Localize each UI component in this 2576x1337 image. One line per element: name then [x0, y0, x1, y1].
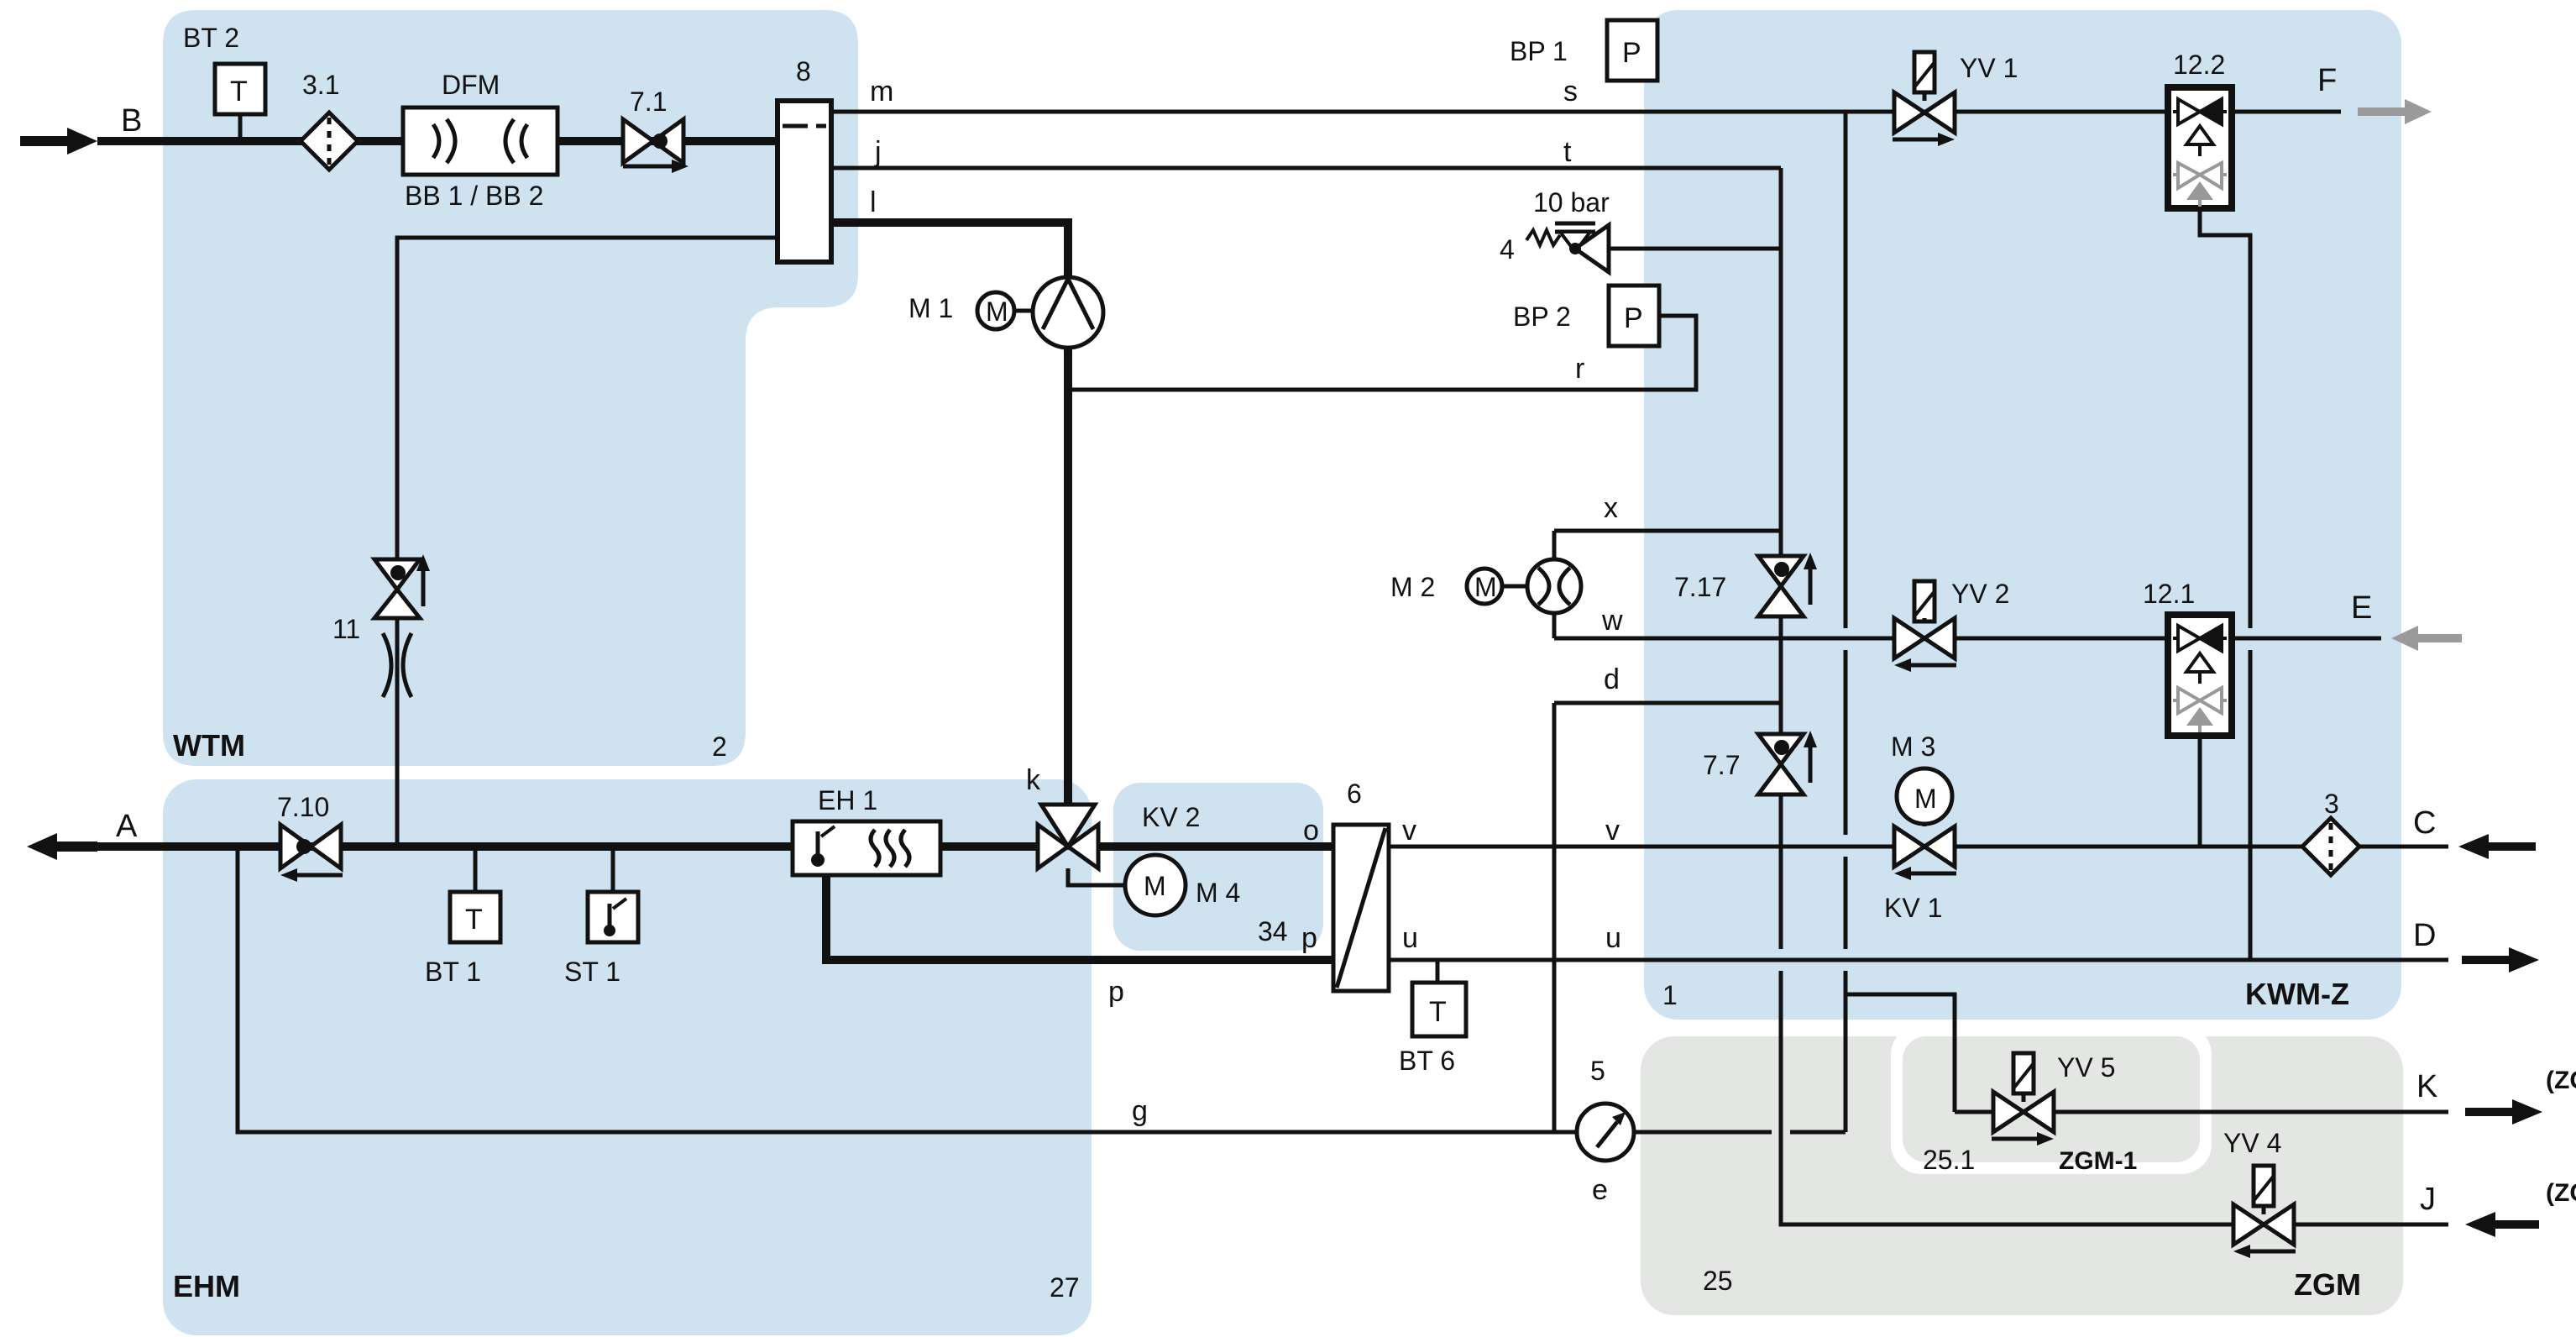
- dfm-meter-icon: [403, 107, 558, 175]
- label-m1: M 1: [908, 293, 953, 323]
- label-d-out: D: [2413, 918, 2436, 953]
- label-3: 3: [2324, 789, 2339, 819]
- label-p-line: p: [1108, 976, 1124, 1008]
- arrow-j-in: [2465, 1212, 2539, 1237]
- label-x: x: [1604, 492, 1618, 524]
- label-w: w: [1601, 605, 1623, 637]
- label-6: 6: [1347, 779, 1362, 809]
- label-yv4: YV 4: [2223, 1128, 2281, 1158]
- label-7_7: 7.7: [1703, 750, 1740, 780]
- label-10bar: 10 bar: [1533, 187, 1610, 218]
- pump-m1-icon: [1033, 277, 1103, 348]
- label-v-port: v: [1402, 815, 1416, 847]
- label-ehm: EHM: [173, 1269, 240, 1303]
- label-27: 27: [1050, 1272, 1080, 1303]
- vent-12_1-icon: [2168, 615, 2232, 736]
- label-12_1: 12.1: [2143, 579, 2195, 609]
- label-st1: ST 1: [564, 957, 620, 987]
- label-bp1: BP 1: [1510, 36, 1568, 66]
- label-1: 1: [1662, 980, 1678, 1010]
- label-m2-m: M: [1474, 572, 1497, 602]
- label-7_1: 7.1: [630, 87, 667, 117]
- label-yv2: YV 2: [1951, 579, 2009, 609]
- region-ehm: [163, 779, 1092, 1335]
- vent-12_2-icon: [2168, 87, 2232, 208]
- label-e-port: e: [1592, 1174, 1608, 1206]
- label-o: o: [1303, 815, 1319, 847]
- label-25_1: 25.1: [1923, 1145, 1975, 1175]
- arrow-k-out: [2465, 1099, 2542, 1125]
- label-b: B: [121, 103, 142, 139]
- label-j-out: J: [2420, 1182, 2436, 1217]
- arrow-c-in: [2458, 834, 2536, 859]
- label-zg-k: (ZG): [2546, 1067, 2576, 1094]
- label-s: s: [1563, 76, 1578, 107]
- label-bt1: BT 1: [425, 957, 481, 987]
- label-p-port: p: [1301, 922, 1317, 954]
- label-bb: BB 1 / BB 2: [405, 181, 543, 211]
- label-t: t: [1563, 136, 1572, 168]
- label-zg-j: (ZG): [2546, 1179, 2576, 1207]
- pump-m2-icon: [1527, 559, 1581, 613]
- label-eh1: EH 1: [818, 785, 877, 815]
- label-d: d: [1604, 663, 1620, 695]
- label-4: 4: [1500, 234, 1515, 265]
- region-kwmz: [1644, 10, 2401, 1020]
- label-yv1: YV 1: [1960, 53, 2018, 83]
- exchanger-6-icon: [1333, 825, 1389, 991]
- label-wtm-2: 2: [712, 731, 727, 762]
- label-m3: M 3: [1891, 731, 1935, 762]
- arrow-a-out: [27, 833, 97, 860]
- label-e: E: [2351, 590, 2372, 626]
- pipe-r-line: [1071, 316, 1696, 390]
- label-v-mid: v: [1605, 815, 1620, 847]
- label-zgm: ZGM: [2294, 1267, 2361, 1302]
- label-u-port: u: [1402, 922, 1418, 954]
- label-kv1: KV 1: [1884, 893, 1942, 923]
- heater-eh1-icon: [793, 821, 940, 875]
- label-c: C: [2413, 805, 2436, 841]
- label-f: F: [2317, 63, 2337, 98]
- pid-schematic: B BT 2 T 3.1 DFM BB 1 / BB 2 7.1 8 m j l…: [0, 0, 2576, 1337]
- label-bt2: BT 2: [183, 23, 239, 53]
- st1-box: [588, 892, 638, 942]
- label-a: A: [116, 809, 138, 844]
- label-7_10: 7.10: [277, 792, 329, 822]
- diagram-canvas: B BT 2 T 3.1 DFM BB 1 / BB 2 7.1 8 m j l…: [0, 0, 2576, 1337]
- label-k-out: K: [2416, 1069, 2437, 1104]
- label-u-mid: u: [1605, 922, 1621, 954]
- label-m2: M 2: [1390, 572, 1435, 602]
- gauge-5-icon: [1577, 1104, 1634, 1161]
- block-8-icon: [778, 101, 831, 262]
- relief-valve-4-icon: [1526, 223, 1609, 272]
- label-m3-m: M: [1914, 784, 1937, 814]
- label-bt6: BT 6: [1399, 1046, 1455, 1076]
- label-bt1-t: T: [465, 904, 483, 936]
- label-wtm: WTM: [173, 728, 245, 763]
- arrow-d-out: [2462, 947, 2539, 973]
- label-11: 11: [332, 614, 360, 644]
- label-j: j: [874, 136, 882, 168]
- label-3_1: 3.1: [302, 70, 339, 100]
- label-8: 8: [796, 56, 811, 87]
- label-5: 5: [1590, 1056, 1605, 1086]
- label-34: 34: [1258, 916, 1288, 946]
- label-bp2-p: P: [1624, 302, 1643, 334]
- label-25: 25: [1703, 1266, 1733, 1296]
- label-kv2: KV 2: [1142, 802, 1200, 832]
- label-r: r: [1575, 353, 1584, 385]
- label-m4-m: M: [1144, 871, 1166, 901]
- label-bt6-t: T: [1429, 996, 1447, 1028]
- label-yv5: YV 5: [2057, 1052, 2115, 1083]
- label-7_17: 7.17: [1674, 572, 1726, 602]
- label-k: k: [1026, 764, 1041, 796]
- label-l: l: [870, 186, 877, 218]
- label-g: g: [1132, 1095, 1148, 1127]
- arrow-e-in: [2391, 626, 2462, 651]
- label-m4: M 4: [1196, 878, 1240, 908]
- label-m: m: [870, 76, 893, 107]
- label-kwmz: KWM-Z: [2245, 977, 2349, 1011]
- label-12_2: 12.2: [2173, 50, 2225, 80]
- label-bp2: BP 2: [1513, 301, 1571, 332]
- label-zgm1: ZGM-1: [2059, 1147, 2137, 1175]
- arrow-b-in: [20, 128, 97, 155]
- label-m1-m: M: [986, 296, 1008, 327]
- label-bp1-p: P: [1622, 37, 1641, 69]
- label-bt2-t: T: [230, 76, 248, 107]
- label-dfm: DFM: [442, 70, 500, 100]
